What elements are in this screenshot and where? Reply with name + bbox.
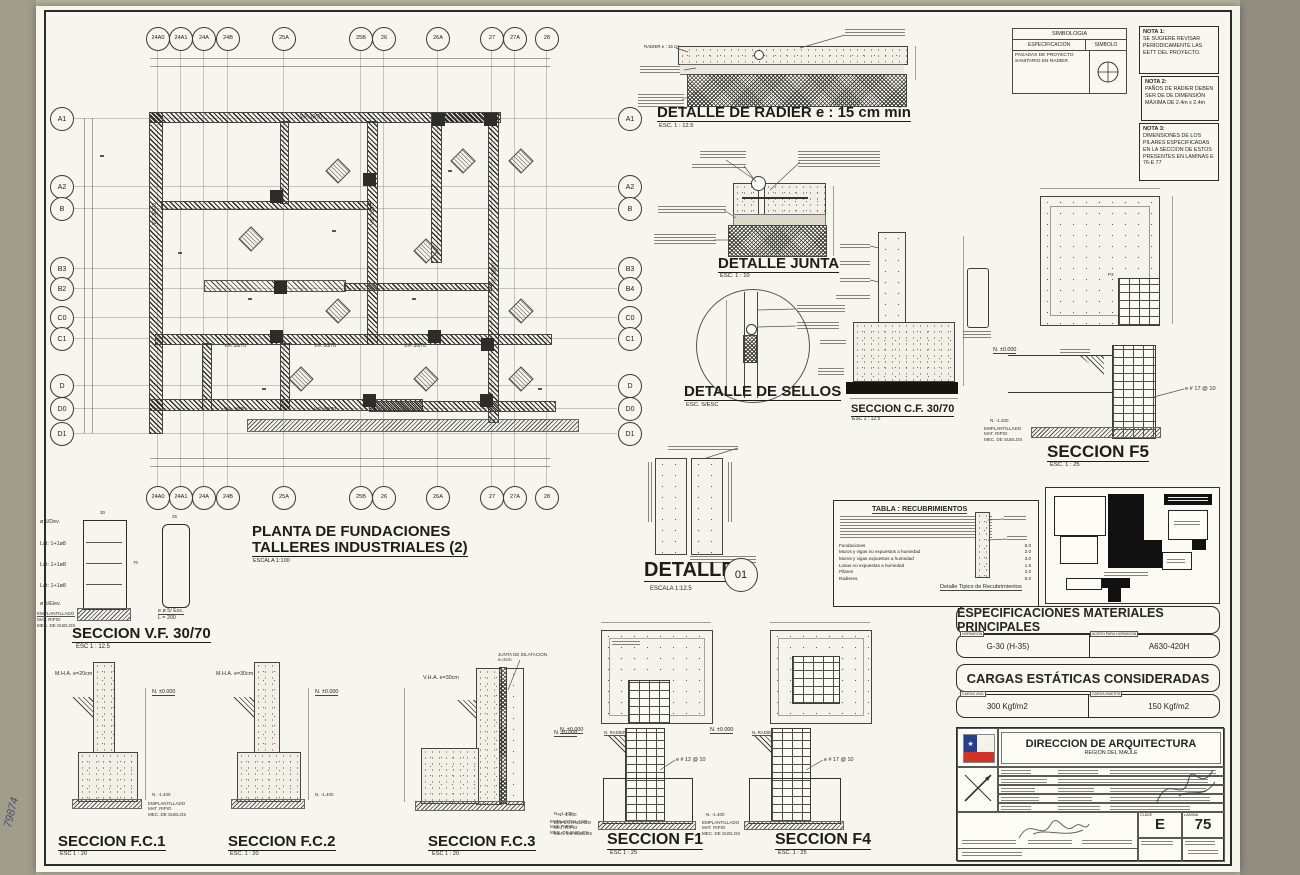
junta-illegible-label (658, 206, 726, 214)
grid-col-bubble-top: 26 (372, 27, 396, 51)
grid-col-bubble-bottom: 24A0 (146, 486, 170, 510)
scanned-drawing-sheet: 79874 PLANTA DE FUNDACIONES TALLERES IND… (0, 0, 1300, 875)
grid-row-bubble-right: D (618, 374, 642, 398)
vf-dim-top: 30 (100, 510, 105, 515)
plan-column-footing (481, 338, 494, 351)
fc1-emplantillado-note: EMPLANTILLADO MAT. RIPIO MEC. DE SUELOS (148, 801, 186, 817)
formato-cell (1137, 837, 1183, 862)
f4-emplantillado-band (745, 822, 843, 829)
plan-wall-label: V.F. 30/70 (314, 343, 336, 349)
dim-line (1040, 188, 1160, 189)
tabla-sketch-label (1007, 536, 1027, 540)
f1-level-bottom: N. -1.400 (558, 812, 577, 817)
grid-row-bubble-right: B (618, 197, 642, 221)
plan-level-tag (100, 155, 104, 157)
radier-fill-band (688, 75, 906, 106)
nota-title: NOTA 3: (1143, 126, 1215, 133)
tabla-sketch-label (1004, 516, 1026, 520)
key-plan-title-bar (1164, 494, 1212, 505)
f5-scale: ESC. 1 : 25 (1050, 462, 1080, 468)
fc2-wall-label: M.H.A. e=30cm (216, 671, 253, 677)
grid-line-horizontal (73, 433, 617, 434)
recubrimiento-label: Pilares (839, 569, 853, 574)
fc1-wall (93, 662, 115, 756)
grid-row-bubble-right: A2 (618, 175, 642, 199)
plan-level-tag (262, 388, 266, 390)
grid-col-bubble-top: 26A (426, 27, 450, 51)
plan-wall-segment (162, 202, 370, 209)
f1-emplantillado-note: EMPLANTILLADO MAT. RIPIO MEC. DE SUELOS (554, 820, 592, 836)
plan-wall-segment (368, 122, 377, 344)
f1-radier-label: N. RADIER (604, 730, 626, 736)
grid-row-bubble-left: B (50, 197, 74, 221)
f1-level-top: N. ±0.000 (560, 727, 583, 734)
plan-scale: ESCALA 1:100 (253, 558, 290, 564)
plan-wall-segment (150, 113, 162, 433)
vf-rebar-label: Lat: 1+1ø8 (40, 583, 66, 589)
junta-scale: ESC. 1 : 10 (720, 273, 750, 279)
f4-scale: ESC. 1 : 25 (778, 850, 807, 856)
fc3-outer-wall (506, 668, 524, 805)
fc1-emplantillado-band (73, 800, 141, 808)
f5-emplantillado-band (1032, 428, 1160, 437)
f4-level-bottom: N. -1.400 (706, 812, 725, 817)
detalle01-title: DETALLE (644, 560, 735, 582)
f4-emplantillado-note: EMPLANTILLADO MAT. RIPIO MEC. DE SUELOS (702, 820, 740, 836)
junta-illegible-label (654, 234, 716, 246)
recubrimiento-value: 1.5 (1025, 563, 1031, 568)
dim-line (145, 688, 146, 800)
fc1-title: SECCION F.C.1 (58, 834, 166, 851)
dim-line (850, 398, 958, 399)
recubrimiento-label: Muros y vigas expuestos a humedad (839, 556, 914, 561)
vf-dim-small: 25 (172, 514, 177, 519)
f5-emplantillado-note: EMPLANTILLADO MAT. RIPIO MEC. DE SUELOS (984, 426, 1022, 442)
f1-plan-label (612, 641, 640, 645)
f1-emplantillado-band (599, 822, 695, 829)
fc1-level-top: N. ±0.000 (152, 689, 175, 696)
grid-row-bubble-right: D0 (618, 397, 642, 421)
fc1-scale: ESC 1 : 20 (60, 851, 87, 857)
org-region: REGION DEL MAULE (1002, 750, 1220, 756)
plan-wall-label: V.F. 30/70 (370, 203, 376, 225)
vf-rebar-label: Lat: 1+1ø8 (40, 541, 66, 547)
plan-wall-segment (345, 284, 491, 290)
signature-scribble-large (1149, 762, 1219, 812)
junta-title: DETALLE JUNTA (718, 256, 839, 273)
lamina-value: 75 (1182, 816, 1224, 833)
dim-line (601, 622, 711, 623)
f5-pilar-label (963, 331, 991, 339)
title-block: ★ DIRECCION DE ARQUITECTURA REGION DEL M… (956, 727, 1224, 861)
simbologia-title: SIMBOLOGIA (1013, 29, 1126, 40)
clave-value: E (1138, 816, 1182, 833)
cf-illegible-label (840, 278, 870, 282)
f5-pilar-detail (967, 268, 989, 328)
plan-level-tag (178, 252, 182, 254)
logo-cell: ★ (957, 728, 999, 768)
hormigon-tab: HORMIGON (960, 631, 984, 637)
detalle01-rotated-label (648, 462, 652, 522)
dim-line (150, 58, 550, 59)
vf-emplantillado-band (78, 609, 130, 620)
north-arrow-icon (961, 771, 995, 807)
grid-row-bubble-right: A1 (618, 107, 642, 131)
cargas-divider (1088, 695, 1089, 717)
grid-col-bubble-bottom: 27A (503, 486, 527, 510)
nota-box: NOTA 3:DIMENSIONES DE LOS PILARES ESPECI… (1139, 123, 1219, 181)
recubrimiento-row: Muros y vigas expuestos a humedad3.0 (839, 555, 1031, 562)
sellos-scale: ESC. S/ESC (686, 402, 719, 408)
simbologia-col-simbolo: SIMBOLO (1086, 40, 1126, 50)
fc1-wall-label: M.H.A. e=20cm (55, 671, 92, 677)
junta-seal-circle (751, 176, 766, 191)
fc2-title: SECCION F.C.2 (228, 834, 336, 851)
sellos-title: DETALLE DE SELLOS (684, 384, 841, 401)
dim-line (963, 236, 964, 386)
f5-rebar-callout: e # 17 @ 10 (1185, 386, 1216, 392)
plan-wall-segment (248, 420, 578, 431)
fc3-slab (421, 748, 479, 804)
f5-step-line (1008, 392, 1112, 393)
key-plan-highlight-block (1126, 540, 1162, 568)
detalle01-rotated-label (728, 462, 732, 522)
fc3-scale: ESC 1 : 20 (432, 851, 459, 857)
hormigon-value: G-30 (H-35) (987, 642, 1030, 651)
recubrimiento-label: Losas no expuestas a humedad (839, 563, 904, 568)
simbologia-table: SIMBOLOGIA ESPECIFICACION SIMBOLO PASADA… (1012, 28, 1127, 94)
fecha-cell (1181, 837, 1225, 862)
grid-col-bubble-top: 25A (272, 27, 296, 51)
cargas-title-box: CARGAS ESTÁTICAS CONSIDERADAS (956, 664, 1220, 692)
recubrimiento-label: Radieres (839, 576, 857, 581)
cf-illegible-label (820, 340, 846, 344)
recubrimiento-row: Fundaciones5.0 (839, 542, 1031, 549)
plan-wall-label: V.F. 30/70 (224, 343, 246, 349)
grid-col-bubble-top: 24A1 (169, 27, 193, 51)
cf-emplantillado-band (846, 382, 958, 394)
cargas-title: CARGAS ESTÁTICAS CONSIDERADAS (967, 671, 1210, 686)
fc2-level-top: N. ±0.000 (315, 689, 338, 696)
grid-col-bubble-top: 27 (480, 27, 504, 51)
nota-text: DIMENSIONES DE LOS PILARES ESPECIFICADAS… (1143, 133, 1215, 167)
signatures-cell (957, 811, 1139, 862)
grid-row-bubble-right: D1 (618, 422, 642, 446)
clave-cell: CLAVE E (1137, 811, 1183, 839)
junta-sand-band (733, 214, 826, 226)
tabla-rows: Fundaciones5.0Muros y vigas no expuestos… (839, 542, 1031, 582)
cf-footing (853, 322, 955, 382)
grid-row-bubble-left: D0 (50, 397, 74, 421)
grid-col-bubble-bottom: 25B (349, 486, 373, 510)
grid-row-bubble-left: D (50, 374, 74, 398)
north-arrow-cell (957, 766, 999, 813)
f5-section-column (1112, 345, 1156, 439)
recubrimiento-row: Pilares2.0 (839, 568, 1031, 575)
key-plan-caption (1104, 572, 1148, 576)
tabla-paragraph (840, 516, 992, 538)
carga-viva-tab: CARGA VIVA (960, 691, 986, 697)
grid-col-bubble-bottom: 24A1 (169, 486, 193, 510)
detalle01-number-bubble: 01 (724, 558, 758, 592)
key-plan-box (1045, 487, 1220, 604)
tabla-title: TABLA : RECUBRIMIENTOS (872, 504, 967, 514)
pasada-symbol-icon (1096, 60, 1120, 84)
f5-level-bottom: N. -1.400 (990, 418, 1009, 423)
fc1-level-bottom: N. -1.400 (152, 792, 171, 797)
f1-scale: ESC 1 : 25 (610, 850, 637, 856)
grid-col-bubble-top: 24B (216, 27, 240, 51)
detalle01-top-label (668, 446, 738, 450)
dim-line (770, 622, 870, 623)
grid-col-bubble-top: 24A0 (146, 27, 170, 51)
dim-line (150, 66, 550, 67)
cargas-value-bar: 300 Kgf/m2 150 Kgf/m2 (956, 694, 1220, 718)
radier-pasada-circle (754, 50, 764, 60)
recubrimiento-label: Muros y vigas no expuestos a humedad (839, 549, 920, 554)
nota-title: NOTA 2: (1145, 79, 1215, 86)
grid-row-bubble-left: D1 (50, 422, 74, 446)
detalle01-strip-right (691, 458, 723, 555)
grid-col-bubble-top: 28 (535, 27, 559, 51)
vf-stirrup-shape (162, 524, 190, 608)
f1-title: SECCION F1 (607, 832, 703, 850)
grid-row-bubble-left: C1 (50, 327, 74, 351)
key-plan-small-block (1192, 540, 1206, 550)
junta-dowel-bar (742, 197, 808, 199)
radier-sand-band (680, 64, 904, 75)
radier-scale: ESC. 1 : 12.5 (659, 123, 693, 129)
fc3-junta-label: JUNTA DE DILATACION e=3cm (498, 652, 548, 663)
plan-column-footing (270, 330, 283, 343)
plan-column-footing (363, 394, 376, 407)
grid-col-bubble-bottom: 27 (480, 486, 504, 510)
plan-column-footing (484, 113, 497, 126)
f4-plan-column (792, 656, 840, 704)
grid-col-bubble-bottom: 24B (216, 486, 240, 510)
recubrimiento-value: 5.0 (1025, 576, 1031, 581)
plan-column-footing (432, 113, 445, 126)
f5-level-top: N. ±0.000 (993, 347, 1016, 354)
plan-column-footing (480, 394, 493, 407)
simbologia-col-especificacion: ESPECIFICACION (1013, 40, 1086, 50)
plan-wall-segment (432, 122, 441, 262)
vf-scale: ESC 1 : 12.5 (76, 644, 110, 650)
plan-column-footing (363, 173, 376, 186)
recubrimiento-row: Radieres5.0 (839, 575, 1031, 582)
plan-wall-label: V.F. 30/70 (404, 343, 426, 349)
vf-emplantillado-note: EMPLANTILLADO MAT. RIPIO MEC. DE SUELOS (37, 611, 75, 628)
f1-footing-outline (603, 778, 693, 824)
plan-column-footing (270, 190, 283, 203)
plan-level-tag (538, 388, 542, 390)
grid-col-bubble-bottom: 28 (535, 486, 559, 510)
junta-illegible-label (700, 151, 746, 159)
nota-box: NOTA 2:PAÑOS DE RADIER DEBEN SER DE DE D… (1141, 76, 1219, 121)
cf-illegible-label (836, 295, 870, 299)
grid-col-bubble-top: 27A (503, 27, 527, 51)
f4-level-top: N. ±0.000 (710, 727, 733, 734)
key-plan-stem-block (1108, 588, 1121, 602)
cf-wall (878, 232, 906, 324)
f5-radier-label (1060, 349, 1090, 353)
dim-line (915, 46, 916, 80)
vf-rebar-label: Lat: 1+1ø8 (40, 562, 66, 568)
plan-level-tag (332, 230, 336, 232)
fc1-footing (78, 752, 138, 802)
fc3-wall (476, 668, 502, 805)
nota-title: NOTA 1: (1143, 29, 1215, 36)
grid-row-bubble-left: B2 (50, 277, 74, 301)
recubrimiento-value: 3.0 (1025, 556, 1031, 561)
dim-line (308, 688, 309, 800)
materiales-value-bar: G-30 (H-35) A630-420H (956, 634, 1220, 658)
fc2-emplantillado-band (232, 800, 304, 808)
cf-illegible-label (840, 261, 870, 265)
sellos-backer (744, 336, 756, 362)
carga-viva-value: 300 Kgf/m2 (987, 702, 1028, 711)
org-name: DIRECCION DE ARQUITECTURA (1002, 738, 1220, 750)
junta-illegible-label (692, 164, 746, 168)
f5-column-tag: P2 (1108, 272, 1114, 277)
grid-col-bubble-bottom: 26 (372, 486, 396, 510)
acero-value: A630-420H (1149, 642, 1189, 651)
carga-muerta-tab: CARGA MUERTA (1090, 691, 1122, 697)
carga-muerta-value: 150 Kgf/m2 (1148, 702, 1189, 711)
sellos-seal-circle (746, 324, 757, 335)
fc3-emplantillado-band (416, 802, 524, 810)
grid-col-bubble-bottom: 24A (192, 486, 216, 510)
f4-rebar-callout: e # 17 @ 10 (824, 757, 853, 763)
fc2-footing (237, 752, 301, 802)
dim-line (150, 458, 550, 459)
recubrimiento-label: Fundaciones (839, 543, 865, 548)
grid-col-bubble-top: 24A (192, 27, 216, 51)
detalle01-scale: ESCALA 1:12.5 (650, 586, 692, 592)
fc2-wall (254, 662, 280, 756)
dim-line (150, 466, 550, 467)
plan-wall-label: V.F. 30/70 (300, 114, 322, 120)
sellos-illegible-label (797, 305, 845, 313)
fc3-title: SECCION F.C.3 (428, 834, 536, 851)
plan-wall-label: V.F. 30/70 (314, 407, 336, 413)
materiales-divider (1089, 635, 1090, 657)
nota-text: PAÑOS DE RADIER DEBEN SER DE DE DIMENSIÓ… (1145, 86, 1215, 107)
cf-scale: ESC 1 : 12.5 (852, 416, 880, 422)
key-plan-legend-box (1162, 552, 1192, 570)
vf-rebar-label: ø 5/Dev. (40, 519, 60, 525)
scan-left-strip (0, 0, 36, 875)
detalle01-strip-left (655, 458, 687, 555)
plan-column-footing (428, 330, 441, 343)
nota-text: SE SUGIERE REVISAR PERIODICAMENTE LAS EE… (1143, 36, 1215, 57)
dim-line (833, 186, 834, 256)
vf-dim-side: 70 (133, 560, 138, 565)
f1-plan-column (628, 680, 670, 724)
especificaciones-title: ESPECIFICACIONES MATERIALES PRINCIPALES (957, 606, 1219, 634)
grid-row-bubble-left: A2 (50, 175, 74, 199)
vf-title: SECCION V.F. 30/70 (72, 626, 211, 643)
plan-title-line1: PLANTA DE FUNDACIONES (252, 524, 450, 540)
vf-rebar-label: ø 5/Elev. (40, 601, 61, 607)
recubrimiento-row: Muros y vigas no expuestos a humedad2.0 (839, 549, 1031, 556)
key-plan-bar-block (1102, 578, 1130, 588)
radier-concrete-band (678, 46, 908, 65)
acero-tab: ACERO PARA HORMIGON (1090, 631, 1138, 637)
grid-row-bubble-right: C1 (618, 327, 642, 351)
chile-flag-logo: ★ (963, 734, 995, 763)
sellos-illegible-label (797, 322, 839, 330)
nota-box: NOTA 1:SE SUGIERE REVISAR PERIODICAMENTE… (1139, 26, 1219, 74)
plan-level-tag (448, 170, 452, 172)
grid-row-bubble-right: B4 (618, 277, 642, 301)
vf-main-section (83, 520, 127, 610)
simbologia-espec-text: PASADAS DE PROYECTO SANITARIO EN RADIER (1013, 51, 1090, 93)
key-plan-bar-outline (1066, 578, 1102, 590)
tabla-sketch-wall (975, 512, 990, 578)
recubrimiento-row: Losas no expuestas a humedad1.5 (839, 562, 1031, 569)
plan-level-tag (412, 298, 416, 300)
radier-leader-label: RADIER e : 15 cm (644, 44, 680, 49)
fc2-level-bottom: N. -1.400 (315, 792, 334, 797)
f1-rebar-callout: e # 12 @ 10 (676, 757, 705, 763)
f4-footing-outline (749, 778, 841, 824)
vf-stirrup-note: e ø 5/ Esc. L = 200 (158, 608, 184, 622)
f4-title: SECCION F4 (775, 832, 871, 850)
plan-title-line2: TALLERES INDUSTRIALES (2) (252, 540, 468, 557)
plan-column-footing (274, 281, 287, 294)
grid-row-bubble-left: A1 (50, 107, 74, 131)
junta-illegible-label (798, 151, 880, 168)
plan-wall-label: V.F. 30/70 (492, 263, 498, 285)
fc2-scale: ESC. 1 : 20 (230, 851, 259, 857)
scan-right-strip (1240, 0, 1300, 875)
key-plan-legend-box (1168, 510, 1208, 540)
cf-illegible-label (818, 368, 844, 377)
cf-title: SECCION C.F. 30/70 (851, 404, 954, 417)
key-plan-building-outline (1054, 496, 1106, 536)
dim-line (726, 300, 727, 390)
junta-fill-band (729, 226, 826, 256)
plan-wall-label: V.F. 30/70 (224, 407, 246, 413)
radier-callout-label (845, 29, 905, 38)
plan-level-tag (248, 298, 252, 300)
plan-wall-segment (370, 402, 555, 411)
recubrimiento-value: 5.0 (1025, 543, 1031, 548)
f5-title: SECCION F5 (1047, 443, 1149, 462)
key-plan-building-outline (1060, 536, 1098, 564)
lamina-cell: LAMINA 75 (1181, 811, 1225, 839)
radier-title: DETALLE DE RADIER e : 15 cm min (657, 105, 911, 122)
grid-col-bubble-bottom: 26A (426, 486, 450, 510)
especificaciones-title-box: ESPECIFICACIONES MATERIALES PRINCIPALES (956, 606, 1220, 634)
tabla-caption: Detalle Tipico de Recubrimientos (940, 584, 1022, 591)
dim-line (1172, 196, 1173, 324)
plan-wall-label: V.F. 30/70 (152, 203, 158, 225)
grid-col-bubble-bottom: 25A (272, 486, 296, 510)
dim-line (404, 688, 405, 802)
recubrimiento-value: 2.0 (1025, 569, 1031, 574)
grid-col-bubble-top: 25B (349, 27, 373, 51)
f5-plan-column (1118, 278, 1160, 326)
recubrimiento-value: 2.0 (1025, 549, 1031, 554)
fc3-wall-label: V.H.A. e=30cm (423, 675, 459, 681)
cf-illegible-label (840, 244, 870, 248)
